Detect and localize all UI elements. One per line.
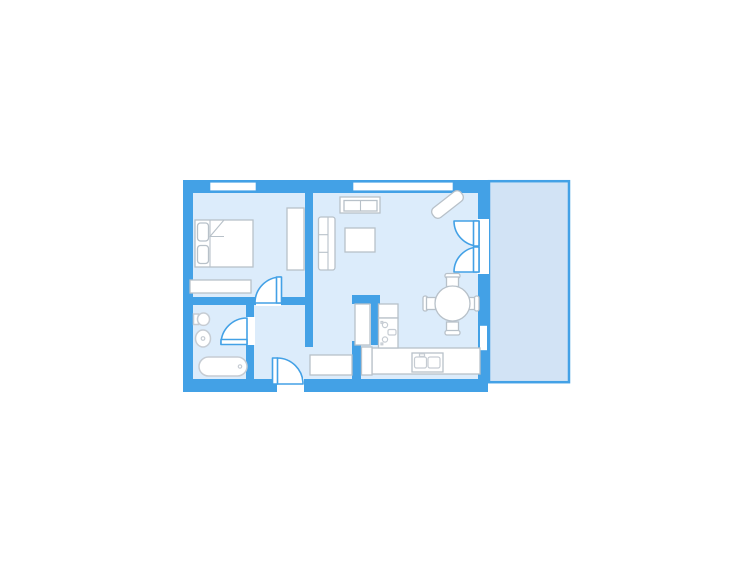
- chair-west-seat: [427, 298, 436, 310]
- room-balcony: [489, 181, 569, 382]
- chair-east-back: [475, 296, 480, 311]
- dresser: [190, 280, 251, 293]
- entrance-door-leaf: [273, 358, 278, 384]
- pillow-top: [198, 223, 209, 241]
- wall-bedroom-bottom-left: [183, 297, 256, 305]
- wall-bedroom-bottom-right: [281, 297, 313, 305]
- sofa: [319, 217, 336, 270]
- wall-bedroom-living: [305, 190, 313, 347]
- tall-cabinet: [355, 304, 370, 345]
- chair-south: [445, 322, 460, 335]
- sofa-body: [319, 217, 336, 270]
- upper-cabinet: [379, 304, 399, 318]
- entry-bench: [310, 355, 352, 375]
- toilet: [194, 313, 210, 325]
- bathtub: [199, 357, 247, 376]
- chair-north-seat: [447, 277, 459, 287]
- balcony-door-leaf-bottom: [474, 247, 480, 272]
- bathroom-door-leaf: [221, 340, 247, 345]
- bathtub-body: [199, 357, 247, 376]
- chair-south-seat: [447, 322, 459, 331]
- chair-south-back: [445, 331, 460, 336]
- balcony-floor: [489, 181, 569, 382]
- living-top-window: [353, 182, 454, 191]
- floor-plan-canvas: [0, 0, 755, 566]
- balcony-door-leaf-top: [474, 221, 480, 246]
- pillow-bottom: [198, 246, 209, 264]
- dining-right-window: [479, 325, 488, 351]
- wall-bottom: [183, 379, 488, 392]
- round-dining-table: [435, 286, 470, 321]
- kitchen-sink: [412, 353, 443, 372]
- toilet-bowl: [198, 313, 210, 325]
- wall-bathroom-upper: [246, 305, 254, 318]
- wall-kitchen-lower-stub: [352, 341, 361, 380]
- wardrobe: [287, 208, 304, 270]
- chair-west: [423, 296, 436, 311]
- coffee-table: [345, 228, 375, 252]
- washbasin: [196, 330, 211, 347]
- lower-cabinet: [362, 347, 373, 375]
- washbasin-bowl: [196, 330, 211, 347]
- bedroom-door-leaf: [277, 277, 282, 303]
- wall-bathroom-lower: [246, 344, 254, 380]
- chair-north: [445, 274, 460, 287]
- floor-plan-drawing: [0, 0, 755, 566]
- bedroom-top-window: [210, 182, 257, 191]
- stove: [379, 318, 399, 348]
